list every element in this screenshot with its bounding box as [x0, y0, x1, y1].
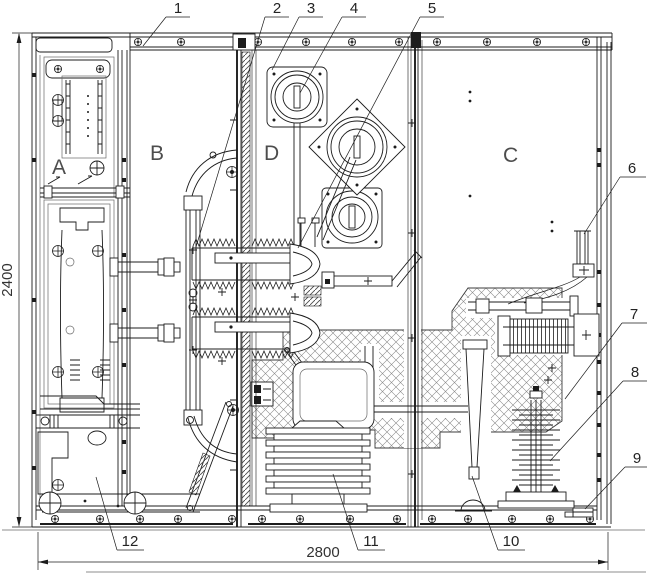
compartment-b-label: B: [150, 142, 165, 165]
svg-text:3: 3: [307, 0, 315, 17]
feedthrough-rods: [110, 258, 180, 342]
compartment-a-label: A: [52, 156, 67, 179]
drawing-canvas: 2400 2800 A B D C 1 2 3 4 5 6 7 8 9: [0, 0, 647, 577]
earthing-symbol: [90, 161, 104, 175]
compartment-a-lower: [44, 200, 114, 412]
callouts: 1 2 3 4 5 6 7 8 9 10 11 12: [96, 0, 647, 550]
callout-8: 8: [550, 364, 647, 461]
bushing-lower-mid: [322, 188, 382, 248]
bushing-assembly: [267, 67, 405, 248]
compartment-d-label: D: [264, 142, 280, 165]
svg-text:10: 10: [503, 533, 520, 550]
svg-text:6: 6: [628, 160, 636, 177]
svg-text:7: 7: [630, 306, 638, 323]
busbar-arm: [322, 250, 422, 288]
callout-6: 6: [584, 160, 646, 234]
cable-termination-side: [468, 91, 599, 517]
svg-text:2: 2: [273, 0, 281, 17]
dimension-height: 2400: [0, 33, 32, 527]
spout-insulators: [192, 239, 321, 365]
callout-9: 9: [585, 450, 647, 509]
svg-text:9: 9: [633, 450, 641, 467]
svg-text:8: 8: [631, 364, 639, 381]
dimension-width-label: 2800: [306, 544, 339, 561]
dimension-height-label: 2400: [0, 263, 16, 296]
compartment-c-label: C: [503, 144, 519, 167]
roller-wheel: [124, 492, 146, 514]
roller-wheel: [39, 492, 61, 514]
svg-text:4: 4: [350, 0, 358, 17]
svg-text:5: 5: [428, 0, 436, 17]
corner-block: [565, 508, 593, 517]
svg-text:12: 12: [122, 533, 139, 550]
technical-drawing: 2400 2800 A B D C 1 2 3 4 5 6 7 8 9: [0, 0, 647, 577]
svg-text:11: 11: [363, 533, 379, 550]
bushing-top-left: [267, 67, 327, 127]
wall-bushing: [498, 314, 599, 356]
svg-text:1: 1: [174, 0, 182, 17]
